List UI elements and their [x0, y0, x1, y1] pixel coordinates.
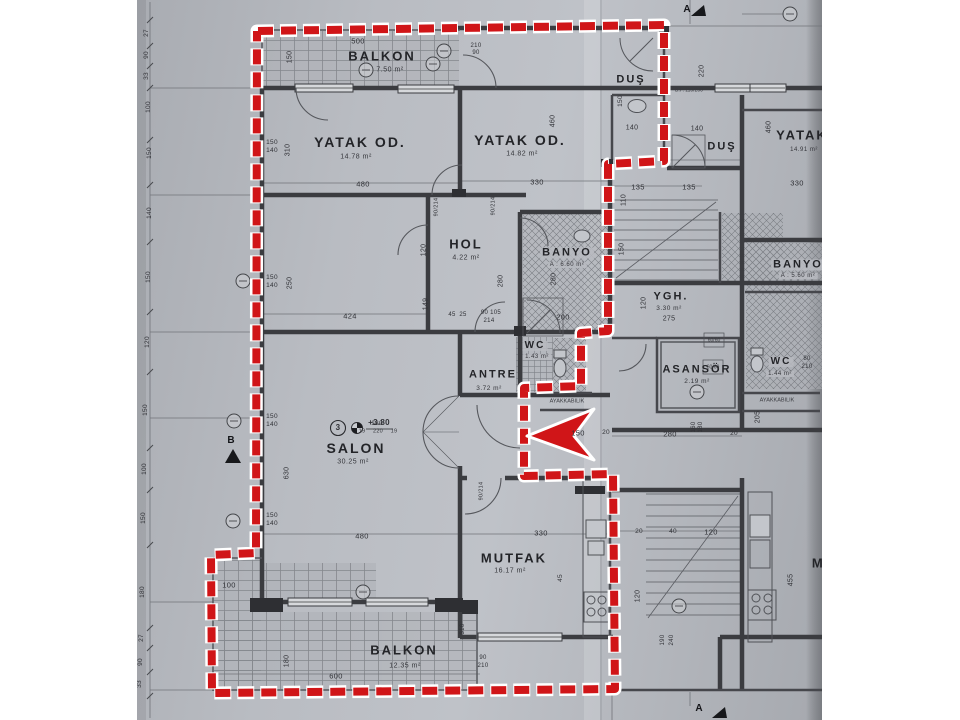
dimension-label: 120 — [421, 244, 428, 257]
dimension-label: 150 — [266, 140, 278, 147]
dimension-label: 90/214 — [434, 198, 440, 217]
dimension-label: 150 — [287, 51, 294, 64]
dimension-label: 90 — [144, 51, 151, 59]
dimension-label: 90 — [472, 50, 479, 56]
dimension-label: AYAKKABILIK — [760, 398, 795, 404]
dimension-label: 140 — [266, 521, 278, 528]
dimension-label: AYAKKABILIK — [550, 399, 585, 405]
room-area-label: 14.91 m² — [790, 147, 818, 153]
dimension-label: 150 — [147, 147, 154, 159]
dimension-label: 33 — [137, 680, 143, 688]
dimension-label: 60/60 — [708, 339, 721, 344]
dimension-label: 310 — [460, 624, 466, 635]
dimension-label: 90/214 — [491, 197, 497, 216]
dimension-label: 60/60 — [707, 366, 720, 371]
room-label: BALKON — [348, 50, 416, 63]
dimension-label: 20 — [602, 430, 610, 437]
dimension-label: 330 — [790, 179, 803, 187]
room-label: BANYO — [771, 260, 822, 271]
dimension-label: 120 — [635, 590, 642, 603]
floorplan-photo: BALKON7.50 m²YATAK OD.14.78 m²YATAK OD.1… — [137, 0, 822, 720]
room-label: BALKON — [370, 644, 438, 657]
room-label: ASANSÖR — [662, 365, 731, 376]
room-area-label: 7.50 m² — [376, 67, 403, 74]
dimension-label: 110 — [621, 194, 628, 206]
room-area-label: 3.30 m² — [656, 306, 682, 313]
dimension-label: 250 — [287, 277, 294, 290]
dimension-label: 150 — [146, 271, 153, 283]
dimension-label: 160 — [691, 422, 697, 433]
dimension-label: 120 — [145, 336, 152, 348]
dimension-label: 275 — [663, 316, 676, 323]
dimension-label: 280 — [551, 273, 558, 286]
room-area-label: 1.44 m² — [766, 371, 794, 377]
dimension-label: 180 — [698, 422, 704, 433]
dimension-label: 150 — [141, 512, 148, 524]
dimension-label: 90 105 — [481, 310, 501, 316]
dimension-label: 210 — [802, 364, 813, 370]
dimension-label: 90 — [138, 658, 145, 666]
room-area-label: 1.43 m² — [523, 354, 551, 360]
dimension-label: 205 — [755, 411, 762, 424]
dimension-label: 600 — [329, 672, 342, 680]
room-label: DUŞ — [616, 75, 645, 86]
dimension-label: 150 — [266, 513, 278, 520]
screenshot-root: { "document": { "type": "architectural-f… — [0, 0, 960, 720]
dimension-label: 135 — [631, 183, 644, 191]
dimension-label: 140 — [266, 148, 278, 155]
room-area-label: 2.19 m² — [684, 379, 710, 386]
dimension-label: 120 — [704, 528, 717, 536]
section-marker-label: A — [695, 704, 702, 714]
dimension-label: 280 — [498, 275, 505, 288]
room-label: MUTFAK — [812, 557, 822, 570]
room-label: BANYO — [540, 248, 594, 259]
section-marker-label: B — [227, 436, 234, 446]
room-area-label: 30.25 m² — [337, 459, 369, 466]
room-label: YATAK OD. — [474, 133, 566, 147]
dimension-label: 210 — [471, 43, 482, 49]
dimension-label: 90/214 — [479, 482, 485, 501]
dimension-label: 330 — [534, 529, 547, 537]
dimension-label: 140 — [147, 207, 154, 219]
room-area-label: 4.22 m² — [452, 255, 479, 262]
dimension-label: 150 — [143, 404, 150, 416]
dimension-label: 460 — [550, 115, 557, 128]
dimension-label: 480 — [355, 532, 368, 540]
dimension-label: 100 — [222, 581, 235, 589]
dimension-label: 45 — [558, 574, 565, 582]
dimension-label: 150 — [618, 95, 625, 107]
dimension-label: 214 — [484, 318, 495, 324]
room-label: YGH. — [654, 292, 689, 303]
dimension-label: 27 — [144, 29, 151, 37]
dimension-label: 630 — [284, 467, 291, 480]
room-label: YATAK OD. — [314, 135, 406, 149]
dimension-label: 45 — [448, 312, 455, 318]
room-area-label: 3.72 m² — [476, 386, 502, 393]
dimension-label: 20 — [730, 431, 738, 438]
dimension-label: 500 — [351, 37, 364, 45]
room-area-label: 12.35 m² — [389, 663, 421, 670]
dimension-label: 150 — [266, 414, 278, 421]
dimension-label: 19 — [391, 429, 398, 435]
dimension-label: 19 — [359, 429, 366, 435]
room-label: DUŞ — [707, 142, 736, 153]
room-area-label: A : 5.60 m² — [779, 273, 818, 279]
dimension-label: 455 — [788, 574, 795, 587]
dimension-label: 40 — [669, 529, 677, 536]
dimension-label: 180 — [140, 586, 147, 598]
plan-labels: BALKON7.50 m²YATAK OD.14.78 m²YATAK OD.1… — [137, 0, 822, 720]
dimension-label: 150 — [266, 275, 278, 282]
room-area-label: 14.78 m² — [340, 154, 372, 161]
room-label: ANTRE — [469, 370, 517, 381]
room-area-label: A : 6.60 m² — [548, 262, 587, 268]
dimension-label: 80 — [803, 356, 810, 362]
dimension-label: 33 — [144, 72, 151, 80]
dimension-label: 3 — [336, 424, 341, 432]
dimension-label: 140 — [691, 126, 704, 133]
room-label: SALON — [327, 441, 386, 455]
dimension-label: 220 — [373, 429, 383, 435]
room-label: MUTFAK — [481, 552, 547, 565]
dimension-label: 135 — [682, 183, 695, 191]
dimension-label: 140 — [266, 283, 278, 290]
dimension-label: 25 — [459, 312, 466, 318]
dimension-label: 220 — [699, 65, 706, 78]
dimension-label: 330 — [530, 178, 543, 186]
dimension-label: 480 — [356, 180, 369, 188]
dimension-label: 100 — [142, 463, 149, 475]
dimension-label: 190 — [660, 635, 666, 646]
room-label: WC — [523, 341, 548, 351]
dimension-label: 200 — [556, 313, 569, 321]
dimension-label: 240 — [669, 635, 675, 646]
dimension-label: 140 — [626, 125, 639, 132]
section-marker-label: A — [683, 5, 690, 15]
dimension-label: 460 — [766, 121, 773, 134]
dimension-label: 210 — [478, 663, 489, 669]
dimension-label: 310 — [285, 144, 292, 157]
room-label: HOL — [449, 238, 482, 251]
room-label: YATAK — [776, 129, 822, 142]
dimension-label: 180 — [371, 421, 383, 428]
dimension-label: 20 — [635, 529, 643, 536]
dimension-label: 424 — [343, 312, 356, 320]
room-area-label: 14.82 m² — [506, 151, 538, 158]
dimension-label: 120 — [641, 297, 648, 310]
dimension-label: 149 — [423, 298, 430, 311]
dimension-label: 280 — [663, 430, 676, 438]
dimension-label: 100 — [146, 101, 153, 113]
room-label: WC — [769, 357, 794, 367]
room-area-label: 16.17 m² — [494, 568, 526, 575]
dimension-label: 150 — [571, 429, 584, 437]
dimension-label: 150 — [619, 243, 626, 256]
dimension-label: 180 — [284, 655, 291, 668]
dimension-label: 27 — [139, 634, 146, 642]
dimension-label: B.P. 110/200 — [675, 89, 703, 94]
dimension-label: 90 — [479, 655, 486, 661]
dimension-label: 140 — [266, 422, 278, 429]
